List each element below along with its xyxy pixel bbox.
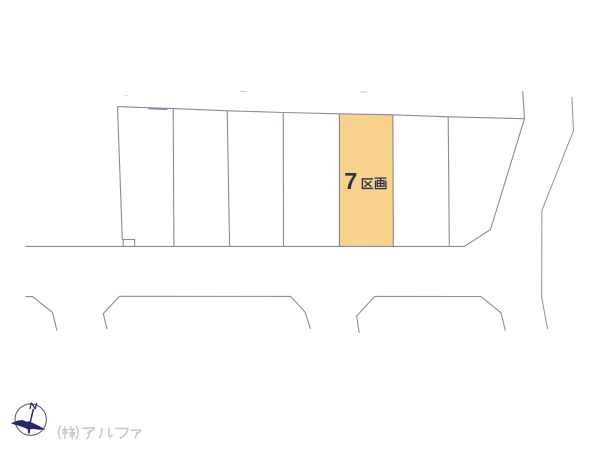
svg-text:7: 7 <box>344 168 357 194</box>
